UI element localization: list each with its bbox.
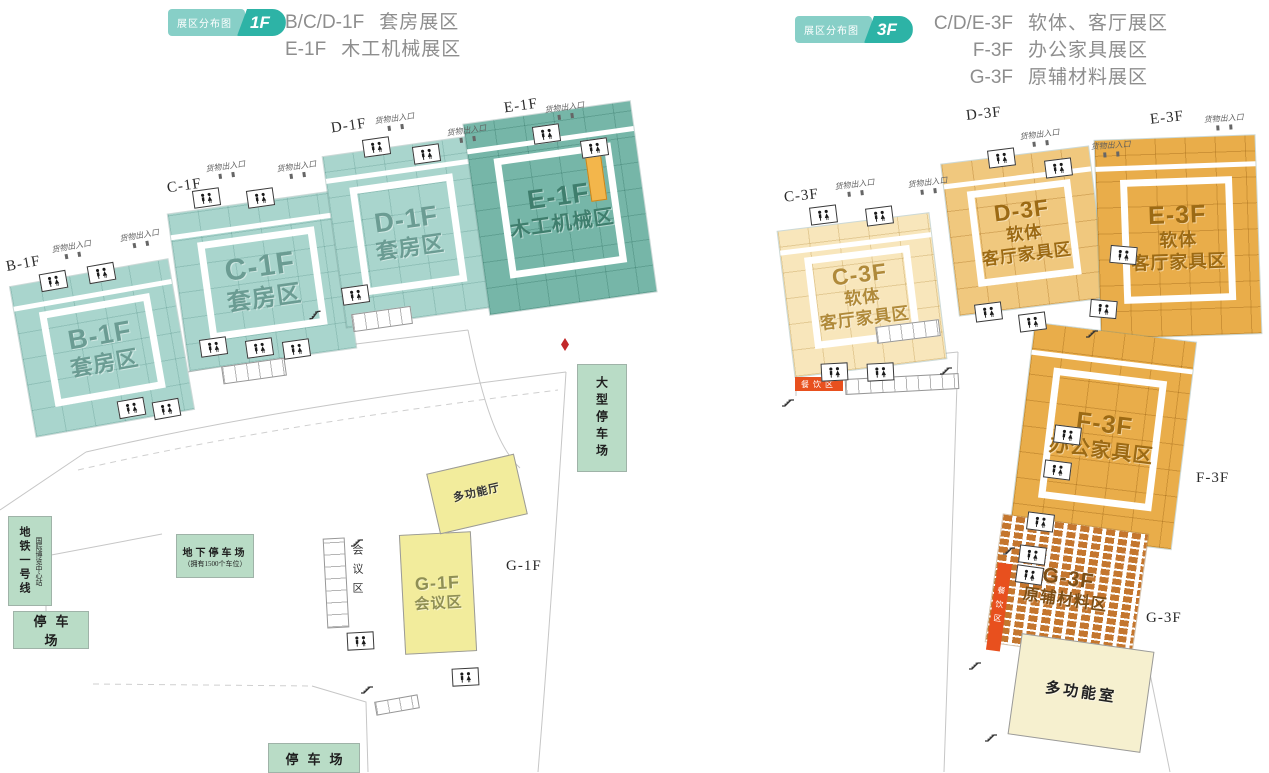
hall-d3f: D-3F 软体 客厅家具区 — [941, 147, 1106, 316]
outside-label-g1f: G-1F — [506, 558, 542, 575]
hall-e3f: E-3F 软体 客厅家具区 — [1095, 135, 1262, 338]
restroom-icon — [245, 337, 274, 359]
meeting-rooms-column — [323, 537, 350, 628]
underground-parking-box: 地下停车场 （拥有1500个车位） — [176, 534, 254, 578]
restroom-icon — [1026, 511, 1055, 532]
restroom-icon — [1018, 544, 1047, 565]
restroom-icon — [282, 338, 311, 360]
restroom-icon — [1044, 157, 1073, 178]
hall-c3f: C-3F 软体 客厅家具区 — [778, 213, 947, 376]
parking-box: 停车场 — [13, 611, 89, 649]
outside-label-c3f: C-3F — [783, 186, 819, 207]
metro-line-box: 地铁一号线 国际博览中心站 — [8, 516, 52, 606]
restroom-icon — [246, 187, 275, 209]
restroom-icon — [821, 362, 849, 381]
exhibition-floorplan-map: 展区分布图 1F B/C/D-1F 套房展区 E-1F 木工机械展区 展区分布图… — [0, 0, 1269, 773]
cargo-entrance-label: 货物出入口 — [1204, 114, 1245, 132]
restroom-icon — [532, 123, 561, 145]
entrance-marker-icon — [560, 338, 570, 356]
escalator-icon — [968, 657, 982, 675]
hall-code: E-3F — [1129, 199, 1225, 232]
escalator-icon — [939, 362, 953, 380]
restroom-icon — [809, 204, 838, 225]
cargo-entrance-label: 货物出入口 — [907, 177, 949, 197]
escalator-icon — [984, 729, 998, 747]
restroom-icon — [867, 362, 895, 381]
escalator-icon — [1002, 542, 1016, 560]
restroom-icon — [452, 667, 480, 686]
metro-line-label: 地铁一号线 — [16, 526, 32, 596]
outside-label-f3f: F-3F — [1196, 470, 1229, 487]
restroom-icon — [974, 301, 1003, 322]
restroom-icon — [347, 631, 375, 650]
escalator-icon — [350, 534, 364, 552]
restroom-icon — [987, 147, 1016, 168]
restroom-icon — [199, 336, 228, 358]
escalator-icon — [781, 394, 795, 412]
cargo-entrance-label: 货物出入口 — [1091, 141, 1132, 159]
underground-parking-sub: （拥有1500个车位） — [184, 559, 247, 569]
multi-function-room: 多功能室 — [1008, 633, 1155, 753]
restroom-icon — [341, 284, 370, 306]
restroom-icon — [412, 143, 441, 165]
outside-label-g3f: G-3F — [1146, 610, 1182, 627]
restroom-icon — [1015, 564, 1044, 586]
large-parking-box: 大型停车场 — [577, 364, 627, 472]
restroom-icon — [1053, 424, 1082, 445]
restroom-icon — [1109, 245, 1137, 265]
meeting-area-vertical-label: 会议区 — [349, 544, 365, 620]
floor3-plan: C-3F 软体 客厅家具区 D-3F 软体 客厅家具区 E-3F 软体 客厅家具… — [0, 0, 1269, 773]
restroom-icon — [1043, 459, 1072, 480]
escalator-icon — [307, 305, 323, 325]
parking-box-bottom: 停车场 — [268, 743, 360, 773]
escalator-icon — [360, 681, 374, 699]
large-parking-label: 大型停车场 — [594, 376, 611, 461]
cargo-entrance-label: 货物出入口 — [834, 179, 876, 199]
escalator-icon — [1085, 325, 1099, 343]
hall-name: 客厅家具区 — [1131, 250, 1227, 275]
outside-label-d3f: D-3F — [965, 104, 1002, 125]
underground-parking-title: 地下停车场 — [183, 544, 248, 559]
metro-station-label: 国际博览中心站 — [34, 537, 44, 586]
restroom-icon — [865, 205, 894, 226]
restroom-icon — [580, 137, 609, 159]
restroom-icon — [192, 187, 221, 209]
restroom-icon — [1089, 299, 1117, 319]
restroom-icon — [1018, 311, 1047, 332]
cargo-entrance-label: 货物出入口 — [1019, 129, 1061, 149]
outside-label-e3f: E-3F — [1149, 108, 1185, 128]
restroom-icon — [362, 136, 391, 158]
